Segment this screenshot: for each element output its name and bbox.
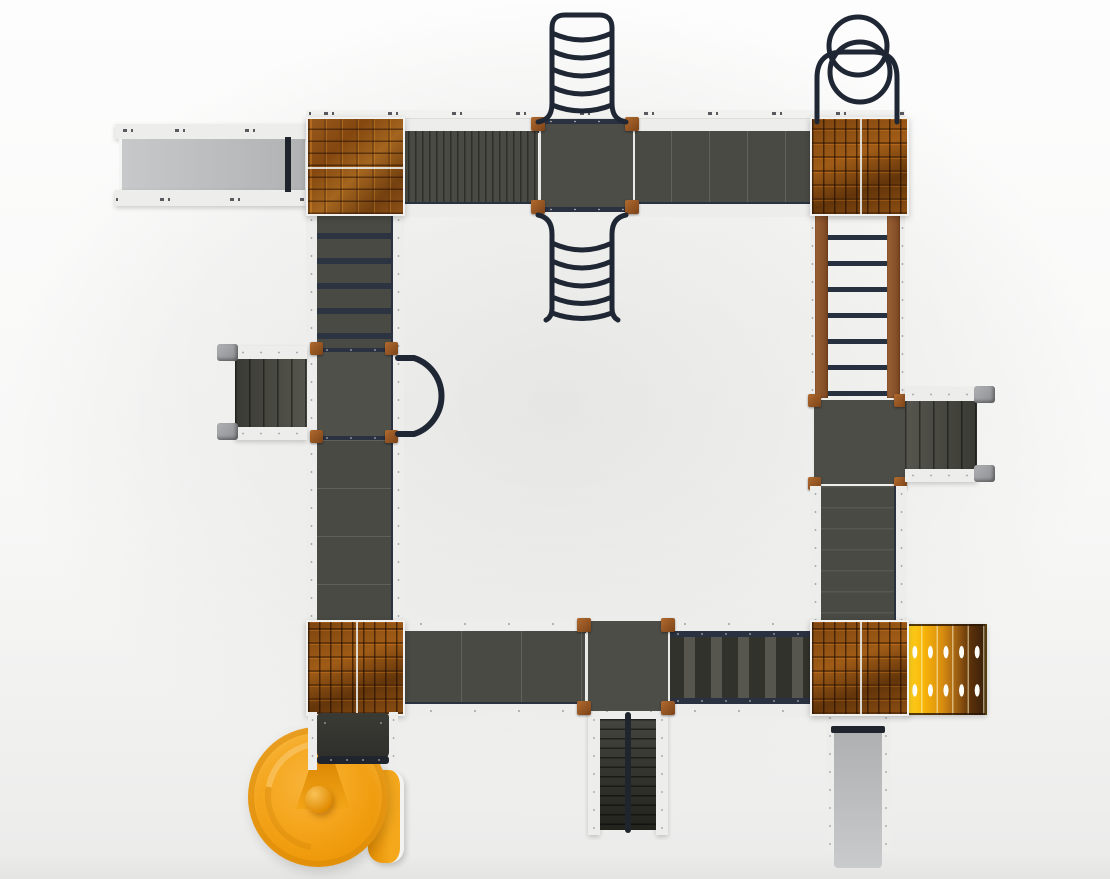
slide-entry-bar [831, 726, 885, 733]
wood-post [577, 701, 591, 715]
platform-edge [541, 207, 629, 212]
stair-stringer [905, 469, 977, 482]
platform-edge-bar [317, 756, 389, 764]
arch-tube [398, 358, 442, 434]
ladder-rung [552, 51, 612, 58]
climb-ramp-left [317, 214, 391, 348]
stairs-left [217, 346, 307, 440]
arch-climber-mid-left [398, 346, 470, 446]
stair-treads [905, 401, 977, 469]
platform-top-center [537, 117, 633, 214]
walkway-right [810, 212, 905, 622]
ladder-frame [612, 215, 626, 320]
slat-edge [668, 631, 810, 637]
double-ring-climber [805, 8, 915, 126]
slide-bed [834, 733, 882, 868]
walkway-rail-right [894, 486, 907, 622]
ladder-rung [552, 297, 612, 304]
platform-rail [389, 712, 398, 770]
stair-stringer [235, 346, 307, 359]
ladder-wood-rail [815, 214, 828, 398]
ladder-rung [552, 261, 612, 268]
tower-top-left [306, 117, 405, 216]
platform-left-mid [317, 348, 391, 440]
platform-bottom-center [584, 617, 668, 715]
straight-slide-bottom-right [824, 710, 892, 870]
platform-deck [812, 400, 907, 484]
stair-center-rail [625, 712, 631, 833]
spiral-slide-center-pole [305, 786, 332, 813]
slide-rail [115, 124, 307, 139]
wood-post [310, 430, 323, 443]
stairs-bottom-center [588, 712, 668, 835]
platform-edge [317, 348, 391, 352]
ladder-frame [538, 215, 552, 320]
ladder-rung [552, 87, 612, 94]
stair-stringer [905, 388, 977, 401]
platform-spiral-entry [308, 712, 398, 772]
wood-post [577, 618, 591, 632]
stair-stringer [656, 712, 668, 835]
walkway-left [306, 212, 402, 622]
handrail-end [217, 423, 238, 440]
slide-rail [115, 190, 307, 206]
walkway-deck-panels [401, 631, 585, 704]
walkway-deck [317, 440, 391, 622]
platform-deck-dark [317, 713, 389, 760]
wood-post [385, 342, 398, 355]
ramp-deck [821, 486, 894, 622]
ladder-rung [552, 69, 612, 76]
ladder-rung [552, 105, 612, 111]
playground-top-view-render [0, 0, 1110, 879]
ladder-side-trim [900, 220, 905, 398]
wood-post [661, 618, 675, 632]
slide-bed [119, 139, 305, 190]
walkway-deck-ribbed [401, 131, 538, 204]
loop-ladder-top-inner [536, 213, 646, 325]
vertical-ladder-right [828, 214, 887, 398]
wood-post [531, 200, 545, 214]
platform-deck [586, 621, 670, 711]
wood-post [310, 342, 323, 355]
straight-slide-top-left [115, 124, 307, 206]
tower-bottom-right [810, 620, 909, 716]
handrail-end [974, 386, 995, 403]
ladder-rung [552, 313, 612, 319]
walkway-deck-slats [668, 631, 810, 704]
loop-ladder-top-outer [536, 6, 646, 124]
slide-entry-bar [285, 137, 291, 192]
stair-stringer [588, 712, 600, 835]
stair-stringer [235, 427, 307, 440]
ladder-rung [552, 243, 612, 250]
wood-post [625, 200, 639, 214]
tower-top-right [810, 117, 909, 216]
ladder-rung [552, 279, 612, 286]
walkway-deck-panels [633, 131, 810, 204]
stair-treads [235, 359, 307, 427]
climb-panel-yellow [905, 624, 987, 715]
platform-rail [308, 712, 317, 770]
handrail-end [974, 465, 995, 482]
platform-deck [539, 121, 635, 210]
handrail-end [217, 344, 238, 361]
stairs-right [905, 388, 995, 482]
ladder-wood-rail [887, 214, 900, 398]
ladder-rung [552, 33, 612, 40]
tower-bottom-left [306, 620, 405, 716]
wood-post [661, 701, 675, 715]
wood-post [808, 394, 821, 407]
platform-right [810, 398, 905, 486]
